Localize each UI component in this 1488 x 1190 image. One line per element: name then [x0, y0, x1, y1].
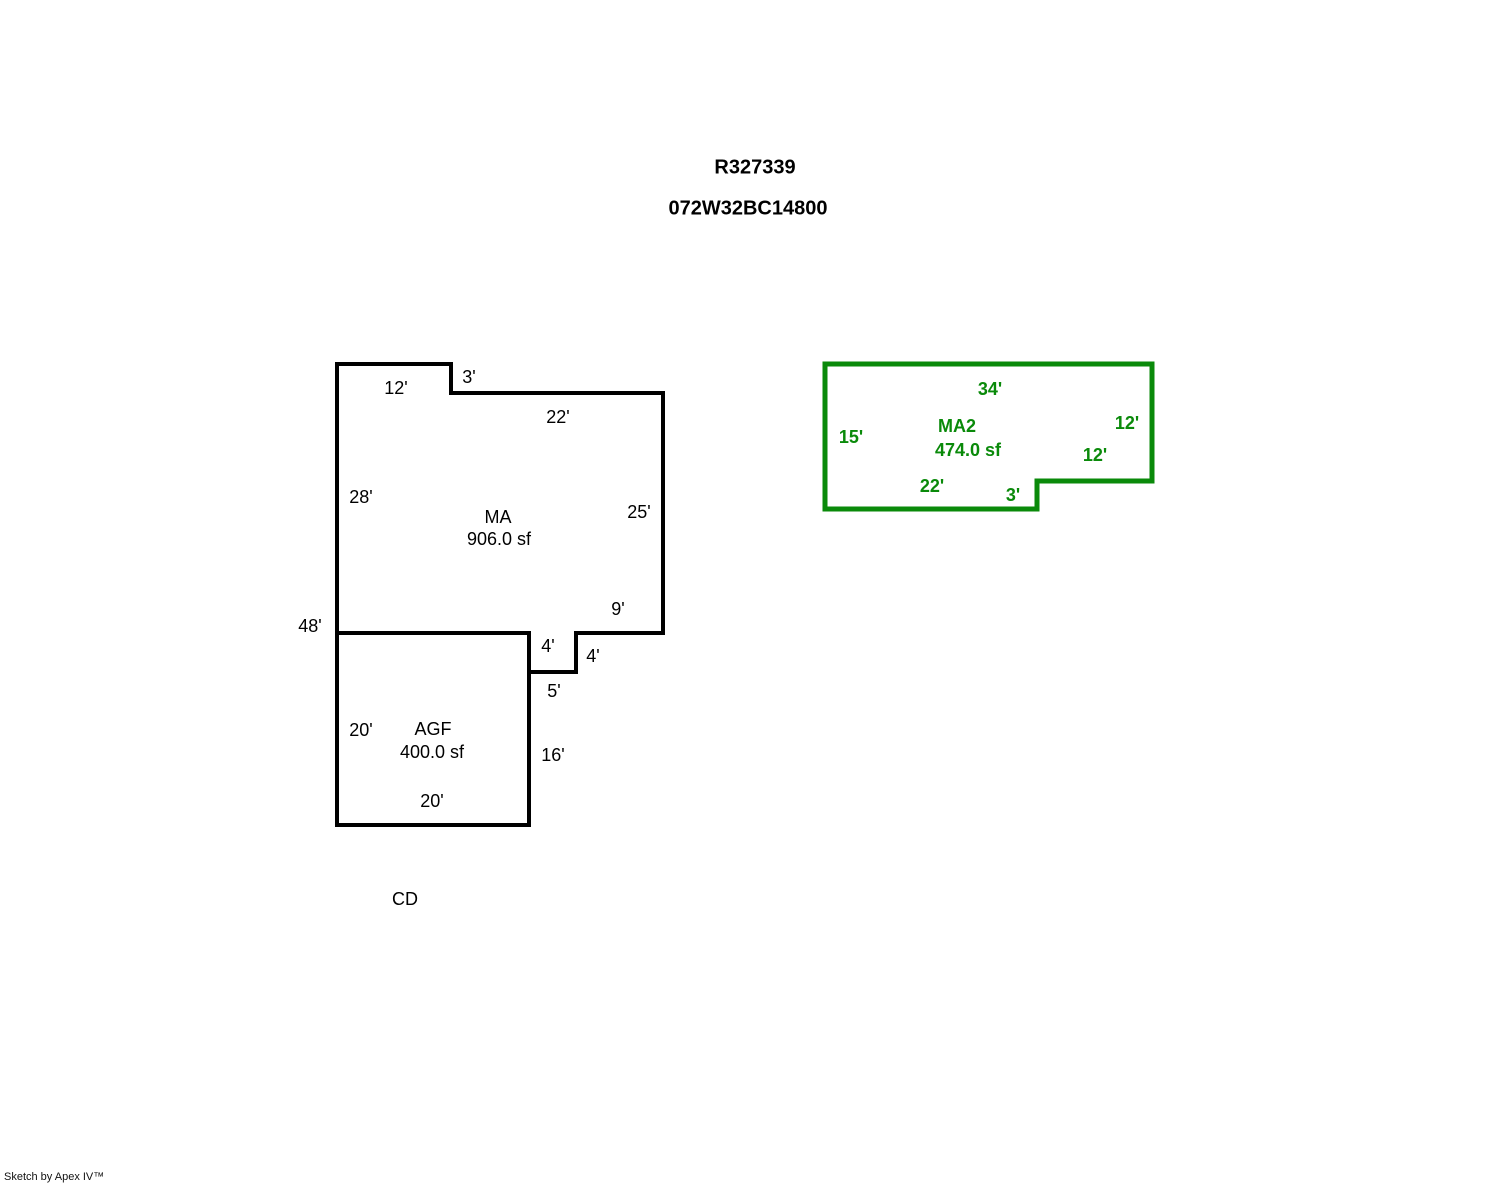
ma-dim-top-right: 22' — [546, 408, 569, 426]
ma-dim-left: 28' — [349, 488, 372, 506]
ma2-dim-left: 15' — [839, 428, 863, 446]
ma-dim-notch-outer: 4' — [586, 647, 599, 665]
ma2-dim-bottom: 22' — [920, 477, 944, 495]
apex-credit: Sketch by Apex IV™ — [4, 1171, 104, 1183]
ma2-dim-step-top: 12' — [1083, 446, 1107, 464]
ma-dim-notch-inner: 4' — [541, 637, 554, 655]
agf-dim-bottom: 20' — [420, 792, 443, 810]
ma2-area-sf: 474.0 sf — [935, 441, 1001, 459]
ma2-area-label: MA2 — [938, 417, 976, 435]
ma-area-label: MA — [485, 508, 512, 526]
ma-dim-bottom-right: 9' — [611, 600, 624, 618]
ma2-dim-step-side: 3' — [1006, 486, 1020, 504]
ma-dim-notch-bottom: 5' — [547, 682, 560, 700]
ma2-dim-top: 34' — [978, 380, 1002, 398]
ma2-dim-right: 12' — [1115, 414, 1139, 432]
ma-dim-top-step: 3' — [462, 368, 475, 386]
cd-area-label: CD — [392, 890, 418, 908]
sketch-page: R327339 072W32BC14800 12' 3' 22' 28' 25'… — [0, 0, 1488, 1190]
agf-dim-right: 16' — [541, 746, 564, 764]
ma-dim-left-overall: 48' — [298, 617, 321, 635]
ma-dim-right: 25' — [627, 503, 650, 521]
agf-area-sf: 400.0 sf — [400, 743, 464, 761]
agf-dim-left: 20' — [349, 721, 372, 739]
ma-area-sf: 906.0 sf — [467, 530, 531, 548]
agf-area-label: AGF — [414, 720, 451, 738]
ma-dim-top-left: 12' — [384, 379, 407, 397]
sketch-drawing — [0, 0, 1488, 1190]
